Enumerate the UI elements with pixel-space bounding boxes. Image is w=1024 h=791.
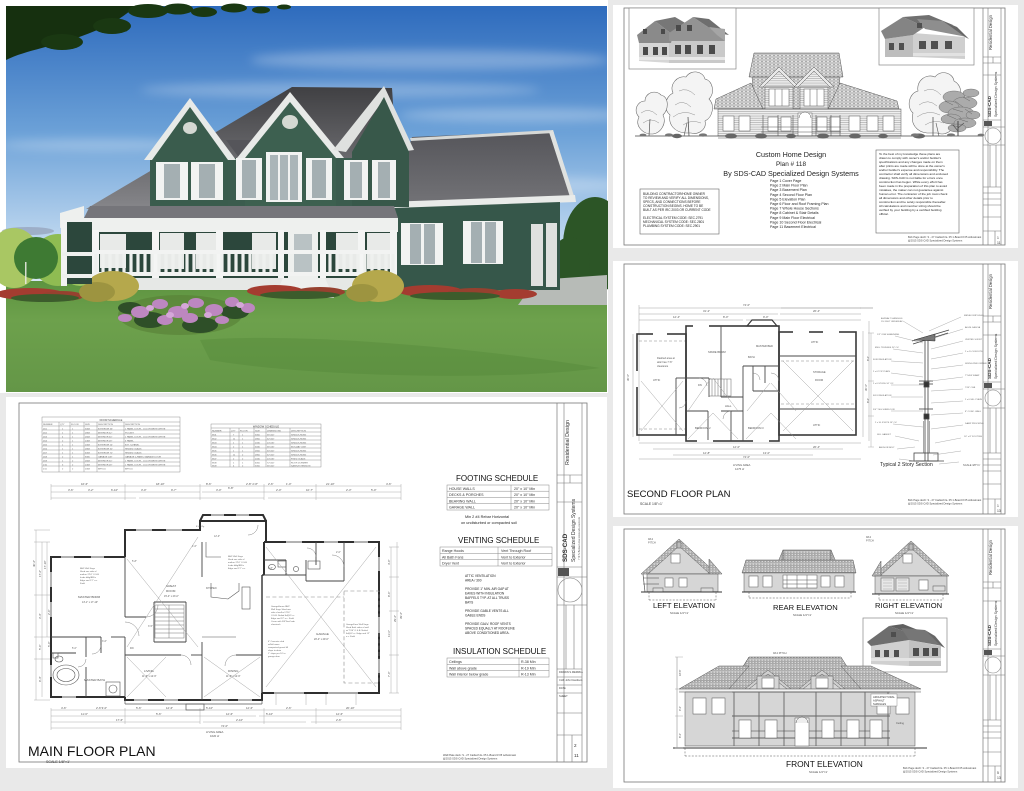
svg-text:2068: 2068	[85, 444, 91, 446]
svg-text:@2015 SDS-CAD Specialized Desi: @2015 SDS-CAD Specialized Design Systems	[908, 501, 963, 505]
svg-text:DN: DN	[130, 647, 134, 650]
svg-text:ANCHOR BOLT: ANCHOR BOLT	[879, 446, 895, 449]
svg-text:W06: W06	[212, 454, 217, 456]
svg-text:mather 7/16" O.S.B: mather 7/16" O.S.B	[228, 561, 247, 564]
svg-text:8'-0" Clg: 8'-0" Clg	[196, 526, 205, 528]
svg-text:official.: official.	[879, 212, 889, 216]
svg-text:Residential Design: Residential Design	[565, 420, 571, 465]
svg-text:11'-6": 11'-6"	[81, 712, 88, 716]
svg-text:o.c. Field: o.c. Field	[346, 636, 356, 638]
svg-text:2'-0": 2'-0"	[336, 551, 341, 554]
svg-text:Page 5 Elevation Plan: Page 5 Elevation Plan	[770, 197, 805, 201]
svg-text:8'-6": 8'-6"	[206, 482, 212, 486]
svg-text:24"x36": 24"x36"	[267, 458, 275, 460]
svg-text:SASH-EXTENSION: SASH-EXTENSION	[291, 465, 311, 468]
svg-text:GarageHouse BHP: GarageHouse BHP	[271, 605, 290, 608]
svg-text:5: 5	[997, 771, 999, 775]
svg-text:BOX-BAY UNIT: BOX-BAY UNIT	[291, 445, 307, 448]
svg-text:1 PANEL DOOR - COLOR BRITE WHI: 1 PANEL DOOR - COLOR BRITE WHITE	[125, 459, 166, 462]
svg-text:Shed one side of: Shed one side of	[228, 559, 245, 561]
svg-text:3030: 3030	[255, 446, 261, 448]
svg-text:9080: 9080	[85, 456, 91, 458]
svg-text:HOUSE WALLS: HOUSE WALLS	[449, 487, 475, 491]
svg-text:8'-6": 8'-6"	[387, 591, 391, 597]
svg-text:7/16" OSB: 7/16" OSB	[965, 387, 976, 389]
svg-text:30'-0": 30'-0"	[626, 374, 630, 381]
svg-text:Bob Page decK: S - 27 Cadtech: Bob Page decK: S - 27 Cadtech E- 05 1-Bo…	[903, 766, 977, 770]
svg-text:BATH: BATH	[748, 355, 755, 359]
svg-text:QTY: QTY	[231, 430, 236, 432]
svg-text:6'-8": 6'-8"	[228, 486, 234, 490]
svg-text:15# FELT UNDERLAY: 15# FELT UNDERLAY	[881, 320, 903, 323]
svg-text:FOOTING SCHEDULE: FOOTING SCHEDULE	[456, 474, 538, 483]
svg-text:SCALE 1/4"=1': SCALE 1/4"=1'	[895, 611, 914, 615]
svg-text:MASTER BDRM: MASTER BDRM	[78, 595, 101, 599]
svg-text:Page 9 Main Floor Electrical: Page 9 Main Floor Electrical	[770, 216, 815, 220]
svg-text:ROOM: ROOM	[815, 378, 823, 382]
svg-text:20" x 10" Min: 20" x 10" Min	[514, 506, 535, 510]
svg-text:12'-6": 12'-6"	[226, 712, 233, 716]
svg-text:@2015 SDS-CAD Specialized Desi: @2015 SDS-CAD Specialized Design Systems	[908, 238, 963, 242]
svg-text:3'-6": 3'-6"	[68, 488, 74, 492]
svg-text:12'-6": 12'-6"	[166, 706, 173, 710]
svg-text:DECKS & PORCHES: DECKS & PORCHES	[449, 493, 484, 497]
svg-text:O.S.B. Nailed 6d@6"s.c.: O.S.B. Nailed 6d@6"s.c.	[271, 615, 295, 617]
svg-text:3'-0": 3'-0"	[141, 488, 147, 492]
svg-text:HINGED GLASS: HINGED GLASS	[125, 447, 142, 450]
svg-text:side of wall w/ 7/16": side of wall w/ 7/16"	[271, 612, 290, 614]
svg-text:DAMP PROOFING: DAMP PROOFING	[965, 422, 984, 425]
svg-text:Shed one side of: Shed one side of	[80, 571, 97, 573]
svg-text:6'-8": 6'-8"	[268, 567, 273, 570]
svg-text:9/12: 9/12	[648, 537, 654, 541]
svg-text:W05: W05	[212, 450, 217, 452]
svg-text:GABLE ENDS: GABLE ENDS	[465, 614, 485, 618]
svg-text:LEFT ELEVATION: LEFT ELEVATION	[653, 601, 715, 610]
svg-text:Custom Home Design: Custom Home Design	[756, 150, 826, 159]
svg-text:ARCHITECTURAL: ARCHITECTURAL	[873, 695, 895, 699]
svg-text:Residential Design: Residential Design	[988, 273, 993, 309]
svg-text:Vent Through Roof: Vent Through Roof	[501, 549, 531, 553]
svg-text:Specialized Design Systems: Specialized Design Systems	[994, 600, 998, 646]
svg-text:Dashed area at: Dashed area at	[657, 356, 675, 360]
svg-text:17'-6": 17'-6"	[38, 570, 42, 577]
svg-text:12'-6": 12'-6"	[246, 706, 253, 710]
svg-text:12'-6": 12'-6"	[336, 712, 343, 716]
svg-text:EXTERIOR 32": EXTERIOR 32"	[98, 448, 113, 450]
svg-text:74'-0": 74'-0"	[743, 455, 750, 459]
svg-text:SINGLE-HUNG: SINGLE-HUNG	[291, 454, 306, 456]
svg-text:20" x 10" Min: 20" x 10" Min	[514, 487, 535, 491]
svg-text:EAVES WITH INSULATION: EAVES WITH INSULATION	[465, 592, 505, 596]
svg-text:ATTIC VENTILATION: ATTIC VENTILATION	[465, 574, 496, 578]
svg-text:2868: 2868	[85, 448, 91, 450]
svg-text:6d@6"s.c. Edge and 12": 6d@6"s.c. Edge and 12"	[346, 633, 370, 635]
svg-text:EXTERIOR 24": EXTERIOR 24"	[98, 444, 113, 446]
svg-text:Typical 2 Story Section: Typical 2 Story Section	[880, 462, 933, 468]
svg-text:MASTER BATH: MASTER BATH	[84, 678, 105, 682]
svg-text:Bob Page decK: S - 27 Cadtech: Bob Page decK: S - 27 Cadtech E- 05 1-Bo…	[908, 235, 982, 239]
svg-text:R-19 Min: R-19 Min	[521, 666, 536, 670]
svg-text:SDS-CAD: SDS-CAD	[987, 95, 992, 117]
svg-text:MASTER BED: MASTER BED	[756, 344, 773, 348]
svg-text:REAR ELEVATION: REAR ELEVATION	[773, 603, 838, 612]
svg-text:SPARE BD RM: SPARE BD RM	[708, 350, 726, 354]
svg-text:2030: 2030	[255, 442, 261, 444]
svg-text:INTERIOR 30": INTERIOR 30"	[98, 460, 112, 462]
svg-text:4'-6": 4'-6"	[61, 706, 67, 710]
svg-text:20'-4" x 29'-6": 20'-4" x 29'-6"	[314, 638, 329, 641]
svg-text:2: 2	[574, 743, 577, 748]
svg-text:12'-4": 12'-4"	[673, 315, 680, 319]
svg-text:Page 1 Cover Page: Page 1 Cover Page	[770, 179, 801, 183]
svg-text:FRONT ELEVATION: FRONT ELEVATION	[786, 759, 863, 769]
svg-text:6050: 6050	[255, 462, 261, 464]
svg-text:5'-0": 5'-0"	[72, 647, 77, 650]
svg-text:16" x 8" FOOTING: 16" x 8" FOOTING	[964, 436, 982, 438]
svg-text:3'-5": 3'-5"	[148, 625, 153, 628]
svg-text:39'-6": 39'-6"	[399, 612, 403, 619]
svg-text:FIXED GLASS: FIXED GLASS	[291, 457, 306, 460]
svg-text:13: 13	[997, 776, 1001, 780]
svg-text:2 x 10 JOISTS 16" OC: 2 x 10 JOISTS 16" OC	[875, 422, 897, 424]
svg-text:compacted gravel fill: compacted gravel fill	[268, 646, 288, 649]
svg-text:36"x60": 36"x60"	[267, 466, 275, 468]
svg-text:INTERIOR 32": INTERIOR 32"	[98, 432, 112, 434]
svg-text:DESCRIPTION: DESCRIPTION	[98, 424, 113, 426]
svg-text:sheetrock: sheetrock	[271, 623, 281, 626]
svg-text:9'-0": 9'-0"	[678, 706, 682, 711]
svg-text:2'-3": 2'-3"	[346, 488, 352, 492]
svg-text:W04: W04	[212, 446, 217, 448]
svg-text:1: 1	[242, 462, 244, 464]
svg-text:ENG. TRUSSES 24" OC: ENG. TRUSSES 24" OC	[875, 347, 899, 349]
svg-text:BHP Wall Snge: BHP Wall Snge	[80, 568, 96, 570]
svg-text:INTERIOR 28": INTERIOR 28"	[98, 440, 112, 442]
svg-text:29'-6": 29'-6"	[393, 615, 397, 622]
svg-text:Plan # 118: Plan # 118	[776, 161, 807, 168]
svg-text:1 PANEL DOOR - COLOR BRITE WHI: 1 PANEL DOOR - COLOR BRITE WHITE	[125, 427, 166, 430]
svg-text:40'-6": 40'-6"	[32, 560, 36, 567]
svg-text:Edge and 1'2" o.c.: Edge and 1'2" o.c.	[80, 580, 98, 582]
svg-text:2'-8" 2'-8": 2'-8" 2'-8"	[246, 482, 258, 486]
svg-text:5'-0": 5'-0"	[371, 488, 377, 492]
svg-text:12'-8": 12'-8"	[703, 451, 710, 455]
svg-text:LIVING: LIVING	[144, 669, 155, 673]
svg-text:Insde bldg/BRLs: Insde bldg/BRLs	[228, 565, 245, 567]
svg-text:2'-0": 2'-0"	[276, 488, 282, 492]
svg-text:5'-10": 5'-10"	[206, 706, 213, 710]
svg-text:17'-6": 17'-6"	[116, 718, 123, 722]
svg-text:10'-7": 10'-7"	[306, 488, 313, 492]
svg-text:Page 3 Basement Plan: Page 3 Basement Plan	[770, 188, 807, 192]
svg-text:DATE: DATE	[559, 686, 566, 690]
svg-text:30"x60": 30"x60"	[267, 450, 275, 452]
svg-text:6 PANEL: 6 PANEL	[125, 439, 135, 442]
svg-text:Cover with 5/8"FireCode: Cover with 5/8"FireCode	[271, 620, 296, 623]
svg-text:W02: W02	[212, 438, 217, 440]
svg-text:11'-6": 11'-6"	[387, 630, 391, 637]
svg-text:R-19 INSULATION: R-19 INSULATION	[873, 394, 892, 397]
svg-text:20" x 10" Min: 20" x 10" Min	[514, 493, 535, 497]
svg-text:STORAGE: STORAGE	[813, 370, 826, 374]
svg-text:VENTED SOFFIT: VENTED SOFFIT	[965, 339, 983, 341]
svg-text:5'-6": 5'-6"	[136, 706, 142, 710]
svg-text:2'-10": 2'-10"	[236, 718, 243, 722]
svg-text:BEDROOM 3: BEDROOM 3	[748, 426, 764, 430]
svg-text:2'-6": 2'-6"	[268, 482, 274, 486]
svg-text:1275 sf: 1275 sf	[735, 467, 744, 471]
svg-text:Bob Page decK: S - 27 Cadtech: Bob Page decK: S - 27 Cadtech E- 05 1-Bo…	[908, 498, 982, 502]
svg-text:clearance: clearance	[657, 364, 669, 368]
svg-text:Specialized Design Systems: Specialized Design Systems	[994, 71, 998, 117]
svg-text:GARAGE: GARAGE	[316, 632, 329, 636]
svg-text:SDS-CAD: SDS-CAD	[987, 357, 992, 379]
svg-text:18'-6": 18'-6"	[678, 669, 682, 676]
svg-text:1 PANEL DOOR - COLOR BRITE WHI: 1 PANEL DOOR - COLOR BRITE WHITE	[125, 435, 166, 438]
svg-text:SINGLE-HUNG: SINGLE-HUNG	[291, 434, 306, 436]
svg-text:HALL: HALL	[725, 404, 732, 408]
svg-text:8" CONC. WALL: 8" CONC. WALL	[965, 410, 982, 413]
svg-text:FLOOR: FLOOR	[240, 430, 248, 432]
svg-text:garage door: garage door	[268, 655, 280, 658]
svg-text:18'-10": 18'-10"	[156, 482, 165, 486]
svg-text:3/4" T&G SUBFLOOR: 3/4" T&G SUBFLOOR	[873, 409, 895, 411]
svg-text:Page 6 Floor and Roof Framing: Page 6 Floor and Roof Framing Plan	[770, 202, 829, 206]
svg-text:2: 2	[72, 468, 74, 470]
svg-text:ASPHALT: ASPHALT	[873, 698, 885, 702]
svg-text:w/6x6 wwm: w/6x6 wwm	[268, 644, 279, 646]
svg-text:26'-4": 26'-4"	[813, 445, 820, 449]
svg-text:ATTIC: ATTIC	[653, 378, 660, 382]
svg-text:SDS-CAD: SDS-CAD	[987, 624, 992, 646]
svg-text:13'-0": 13'-0"	[763, 451, 770, 455]
svg-text:SIZE: SIZE	[85, 424, 90, 426]
svg-text:BAYS: BAYS	[465, 601, 473, 605]
svg-text:4'-6": 4'-6"	[192, 545, 197, 548]
svg-text:DESCRIPTION: DESCRIPTION	[125, 424, 140, 426]
svg-text:12'-0": 12'-0"	[214, 535, 220, 538]
svg-text:ATTIC: ATTIC	[811, 340, 818, 344]
svg-text:5'-6": 5'-6"	[38, 644, 42, 650]
svg-text:3'-0": 3'-0"	[216, 488, 222, 492]
svg-text:13'-1" x 17'-10": 13'-1" x 17'-10"	[82, 601, 98, 604]
svg-text:8'-0": 8'-0"	[723, 315, 729, 319]
svg-text:ROOF-DORMER: ROOF-DORMER	[291, 462, 308, 464]
svg-text:VENTING SCHEDULE: VENTING SCHEDULE	[458, 536, 539, 545]
svg-text:1'-0": 1'-0"	[286, 482, 292, 486]
svg-text:2668: 2668	[85, 460, 91, 462]
svg-text:W07: W07	[212, 458, 217, 460]
svg-text:SILL GASKET: SILL GASKET	[877, 433, 892, 436]
svg-text:2068: 2068	[85, 468, 91, 470]
svg-text:R-38 Min: R-38 Min	[521, 660, 536, 664]
svg-text:PITCH: PITCH	[866, 538, 874, 542]
svg-text:Specialized Design Systems: Specialized Design Systems	[571, 498, 577, 562]
svg-text:3'-2": 3'-2"	[88, 488, 94, 492]
svg-text:24"x36": 24"x36"	[267, 442, 275, 444]
svg-text:TYVEK WRAP: TYVEK WRAP	[965, 374, 980, 377]
svg-text:8'-0": 8'-0"	[866, 398, 870, 403]
svg-text:4'-0": 4'-0"	[387, 559, 391, 565]
svg-text:w/ 7/16" O.S.B. Nailed: w/ 7/16" O.S.B. Nailed	[346, 630, 368, 632]
svg-text:NUMBER: NUMBER	[212, 430, 222, 432]
svg-text:1: 1	[997, 504, 999, 508]
svg-text:Residential Design: Residential Design	[988, 539, 993, 575]
svg-text:KITCHEN: KITCHEN	[206, 587, 217, 590]
svg-text:ABOVE CONDITIONED AREA.: ABOVE CONDITIONED AREA.	[465, 631, 510, 635]
svg-text:Residential Design: Residential Design	[988, 14, 993, 50]
svg-text:6068: 6068	[85, 452, 91, 454]
svg-text:PITCH: PITCH	[648, 540, 656, 544]
svg-text:1620 sf: 1620 sf	[210, 734, 219, 738]
svg-text:Wall interior below grade: Wall interior below grade	[449, 673, 488, 677]
svg-text:BAFFELS TYP. AT ALL TRUSS: BAFFELS TYP. AT ALL TRUSS	[465, 596, 509, 600]
svg-text:9'-4": 9'-4"	[38, 676, 42, 682]
svg-text:Specialized Design Systems: Specialized Design Systems	[994, 333, 998, 379]
svg-text:2468: 2468	[85, 440, 91, 442]
svg-text:Field: Field	[80, 583, 86, 585]
svg-text:8'-0": 8'-0"	[678, 733, 682, 738]
svg-text:DIMENSIONS: DIMENSIONS	[267, 430, 281, 432]
svg-text:Page 8 Cabinet & Stair Details: Page 8 Cabinet & Stair Details	[770, 211, 819, 215]
svg-text:SINGLE-HUNG: SINGLE-HUNG	[291, 450, 306, 452]
svg-text:2650: 2650	[255, 450, 261, 452]
svg-text:DRAWN S.MERRILL: DRAWN S.MERRILL	[559, 670, 584, 674]
svg-text:D11: D11	[43, 468, 48, 470]
svg-text:5'-10": 5'-10"	[266, 712, 273, 716]
svg-text:9'-7": 9'-7"	[171, 488, 177, 492]
svg-text:WINDOW SCHEDULE: WINDOW SCHEDULE	[253, 424, 279, 428]
svg-text:11'-6" x 12'-6": 11'-6" x 12'-6"	[142, 675, 157, 678]
svg-text:SHEET: SHEET	[559, 694, 568, 698]
svg-text:4'-6": 4'-6"	[386, 482, 392, 486]
svg-text:Page 10 Second Floor Electrica: Page 10 Second Floor Electrical	[770, 220, 822, 224]
svg-text:mather 7/16" O.S.B: mather 7/16" O.S.B	[80, 573, 99, 576]
svg-text:RIGHT ELEVATION: RIGHT ELEVATION	[875, 601, 942, 610]
svg-text:1" slope per 10' to: 1" slope per 10' to	[268, 652, 286, 655]
svg-text:on undisturbed or compacted so: on undisturbed or compacted soil	[461, 521, 517, 525]
svg-text:36"x36": 36"x36"	[267, 446, 275, 448]
svg-text:HINGED GLASS: HINGED GLASS	[125, 451, 142, 454]
svg-text:9/12 PITCH: 9/12 PITCH	[773, 651, 787, 655]
svg-text:1: 1	[233, 462, 235, 464]
svg-text:Page 7 Whole House Sections: Page 7 Whole House Sections	[770, 207, 819, 211]
svg-text:17'-10": 17'-10"	[43, 560, 47, 569]
svg-text:Ceiling: Ceiling	[896, 721, 904, 725]
svg-text:Edge and 1'2" o.c.: Edge and 1'2" o.c.	[228, 568, 246, 570]
svg-text:4" Concrete slab: 4" Concrete slab	[268, 640, 285, 643]
svg-text:31'-2": 31'-2"	[703, 309, 710, 313]
svg-text:13: 13	[997, 509, 1001, 513]
svg-text:CHK John Davidson: CHK John Davidson	[559, 678, 583, 682]
svg-text:GARAGE WALL: GARAGE WALL	[449, 506, 475, 510]
svg-text:INTERIOR 28": INTERIOR 28"	[98, 464, 112, 466]
svg-text:Edge and 12" o.c. Field: Edge and 12" o.c. Field	[271, 618, 294, 620]
svg-text:Shed Both sides of wall: Shed Both sides of wall	[346, 626, 369, 629]
svg-text:SINGLE-HUNG: SINGLE-HUNG	[291, 438, 306, 440]
svg-text:4: 4	[233, 466, 235, 468]
svg-text:ASPHALT SHINGLES: ASPHALT SHINGLES	[881, 317, 903, 320]
svg-text:2850: 2850	[255, 438, 261, 440]
svg-text:PROVIDE GALV. ROOF VENTS: PROVIDE GALV. ROOF VENTS	[465, 622, 511, 626]
svg-text:SDS-CAD: SDS-CAD	[562, 533, 569, 562]
svg-text:GarageDoor Wall Snge: GarageDoor Wall Snge	[346, 623, 369, 626]
svg-text:20" x 10" Min: 20" x 10" Min	[514, 499, 535, 503]
svg-text:15'-4" x 23'-0": 15'-4" x 23'-0"	[164, 595, 179, 598]
svg-text:Wall above grade: Wall above grade	[449, 666, 477, 670]
svg-text:36"x60": 36"x60"	[267, 434, 275, 436]
svg-text:DESCRIPTION: DESCRIPTION	[291, 430, 306, 432]
svg-text:1 PANEL DOOR - COLOR BRITE WHI: 1 PANEL DOOR - COLOR BRITE WHITE	[125, 463, 166, 466]
svg-text:W08: W08	[212, 462, 217, 464]
svg-text:@2015 SDS-CAD Specialized Desi: @2015 SDS-CAD Specialized Design Systems	[903, 769, 958, 773]
svg-text:SCALE 1/8"=1': SCALE 1/8"=1'	[46, 760, 70, 764]
svg-text:9/12: 9/12	[866, 535, 872, 539]
svg-text:11: 11	[997, 241, 1001, 245]
svg-text:20'-10": 20'-10"	[346, 706, 355, 710]
svg-text:SCALE 3/8"=1': SCALE 3/8"=1'	[963, 463, 981, 467]
svg-text:2 x 6 SILL PLATE: 2 x 6 SILL PLATE	[965, 398, 983, 401]
svg-text:SCALE 1/4"=1': SCALE 1/4"=1'	[793, 613, 812, 617]
svg-text:R-13 Min: R-13 Min	[521, 673, 536, 677]
svg-text:PROVIDE 1" MIN. AIR GAP AT: PROVIDE 1" MIN. AIR GAP AT	[465, 587, 509, 591]
svg-text:7'-0": 7'-0"	[387, 671, 391, 677]
svg-text:21'-10": 21'-10"	[326, 482, 335, 486]
svg-text:DN: DN	[698, 383, 702, 387]
svg-text:BHP Wall Snge: BHP Wall Snge	[228, 556, 244, 558]
svg-text:SCALE 1/8"=1': SCALE 1/8"=1'	[640, 502, 663, 506]
svg-text:attic has 7'-6": attic has 7'-6"	[657, 360, 673, 364]
svg-text:By SDS-CAD Specialized Design: By SDS-CAD Specialized Design Systems	[723, 169, 859, 178]
svg-text:2030: 2030	[255, 458, 261, 460]
svg-text:Range Hoods: Range Hoods	[442, 549, 464, 553]
svg-text:3'-6": 3'-6"	[102, 640, 107, 643]
svg-text:12'-0": 12'-0"	[733, 445, 740, 449]
svg-text:74'-0": 74'-0"	[221, 724, 228, 728]
svg-text:8'-0": 8'-0"	[866, 356, 870, 361]
svg-text:26'-4": 26'-4"	[813, 309, 820, 313]
svg-text:2'-6": 2'-6"	[336, 718, 342, 722]
svg-text:GARAGE 108": GARAGE 108"	[98, 455, 113, 458]
svg-text:32"x60": 32"x60"	[267, 454, 275, 456]
svg-text:EXT. S-PANEL: EXT. S-PANEL	[125, 443, 140, 446]
svg-text:NUMBER: NUMBER	[43, 424, 53, 426]
svg-text:R-38 INSULATION: R-38 INSULATION	[873, 358, 892, 361]
svg-text:SCALE 1/4"=1': SCALE 1/4"=1'	[809, 770, 828, 774]
svg-text:Dryer Vent: Dryer Vent	[442, 562, 459, 566]
svg-text:SINGLE-HUNG: SINGLE-HUNG	[291, 442, 306, 444]
svg-text:SECOND FLOOR PLAN: SECOND FLOOR PLAN	[627, 489, 731, 500]
svg-text:30'-0": 30'-0"	[864, 384, 868, 391]
svg-text:72"x60": 72"x60"	[267, 462, 275, 464]
svg-text:W01: W01	[212, 434, 217, 436]
svg-text:BUILT AS PER IRC 2003 OR CURRE: BUILT AS PER IRC 2003 OR CURRENT CODE	[643, 208, 711, 212]
svg-text:779 N Benson Ave www.sds-cad.c: 779 N Benson Ave www.sds-cad.com	[577, 517, 581, 560]
svg-text:BIFOLD: BIFOLD	[125, 468, 133, 470]
svg-text:SPACED EQUALLY AT ROOFLINE: SPACED EQUALLY AT ROOFLINE	[465, 627, 515, 631]
svg-text:EXTERIOR 36": EXTERIOR 36"	[98, 428, 113, 430]
svg-text:W09: W09	[212, 466, 217, 468]
svg-text:2 x 6 STUDS 16" OC: 2 x 6 STUDS 16" OC	[873, 383, 894, 385]
svg-text:GREAT: GREAT	[166, 584, 176, 588]
svg-text:6'-10": 6'-10"	[111, 488, 118, 492]
svg-text:3068: 3068	[85, 428, 91, 430]
svg-text:2: 2	[242, 466, 244, 468]
svg-text:74'-0": 74'-0"	[743, 303, 750, 307]
svg-text:2668: 2668	[85, 436, 91, 438]
svg-text:slope to drain: slope to drain	[268, 649, 282, 652]
